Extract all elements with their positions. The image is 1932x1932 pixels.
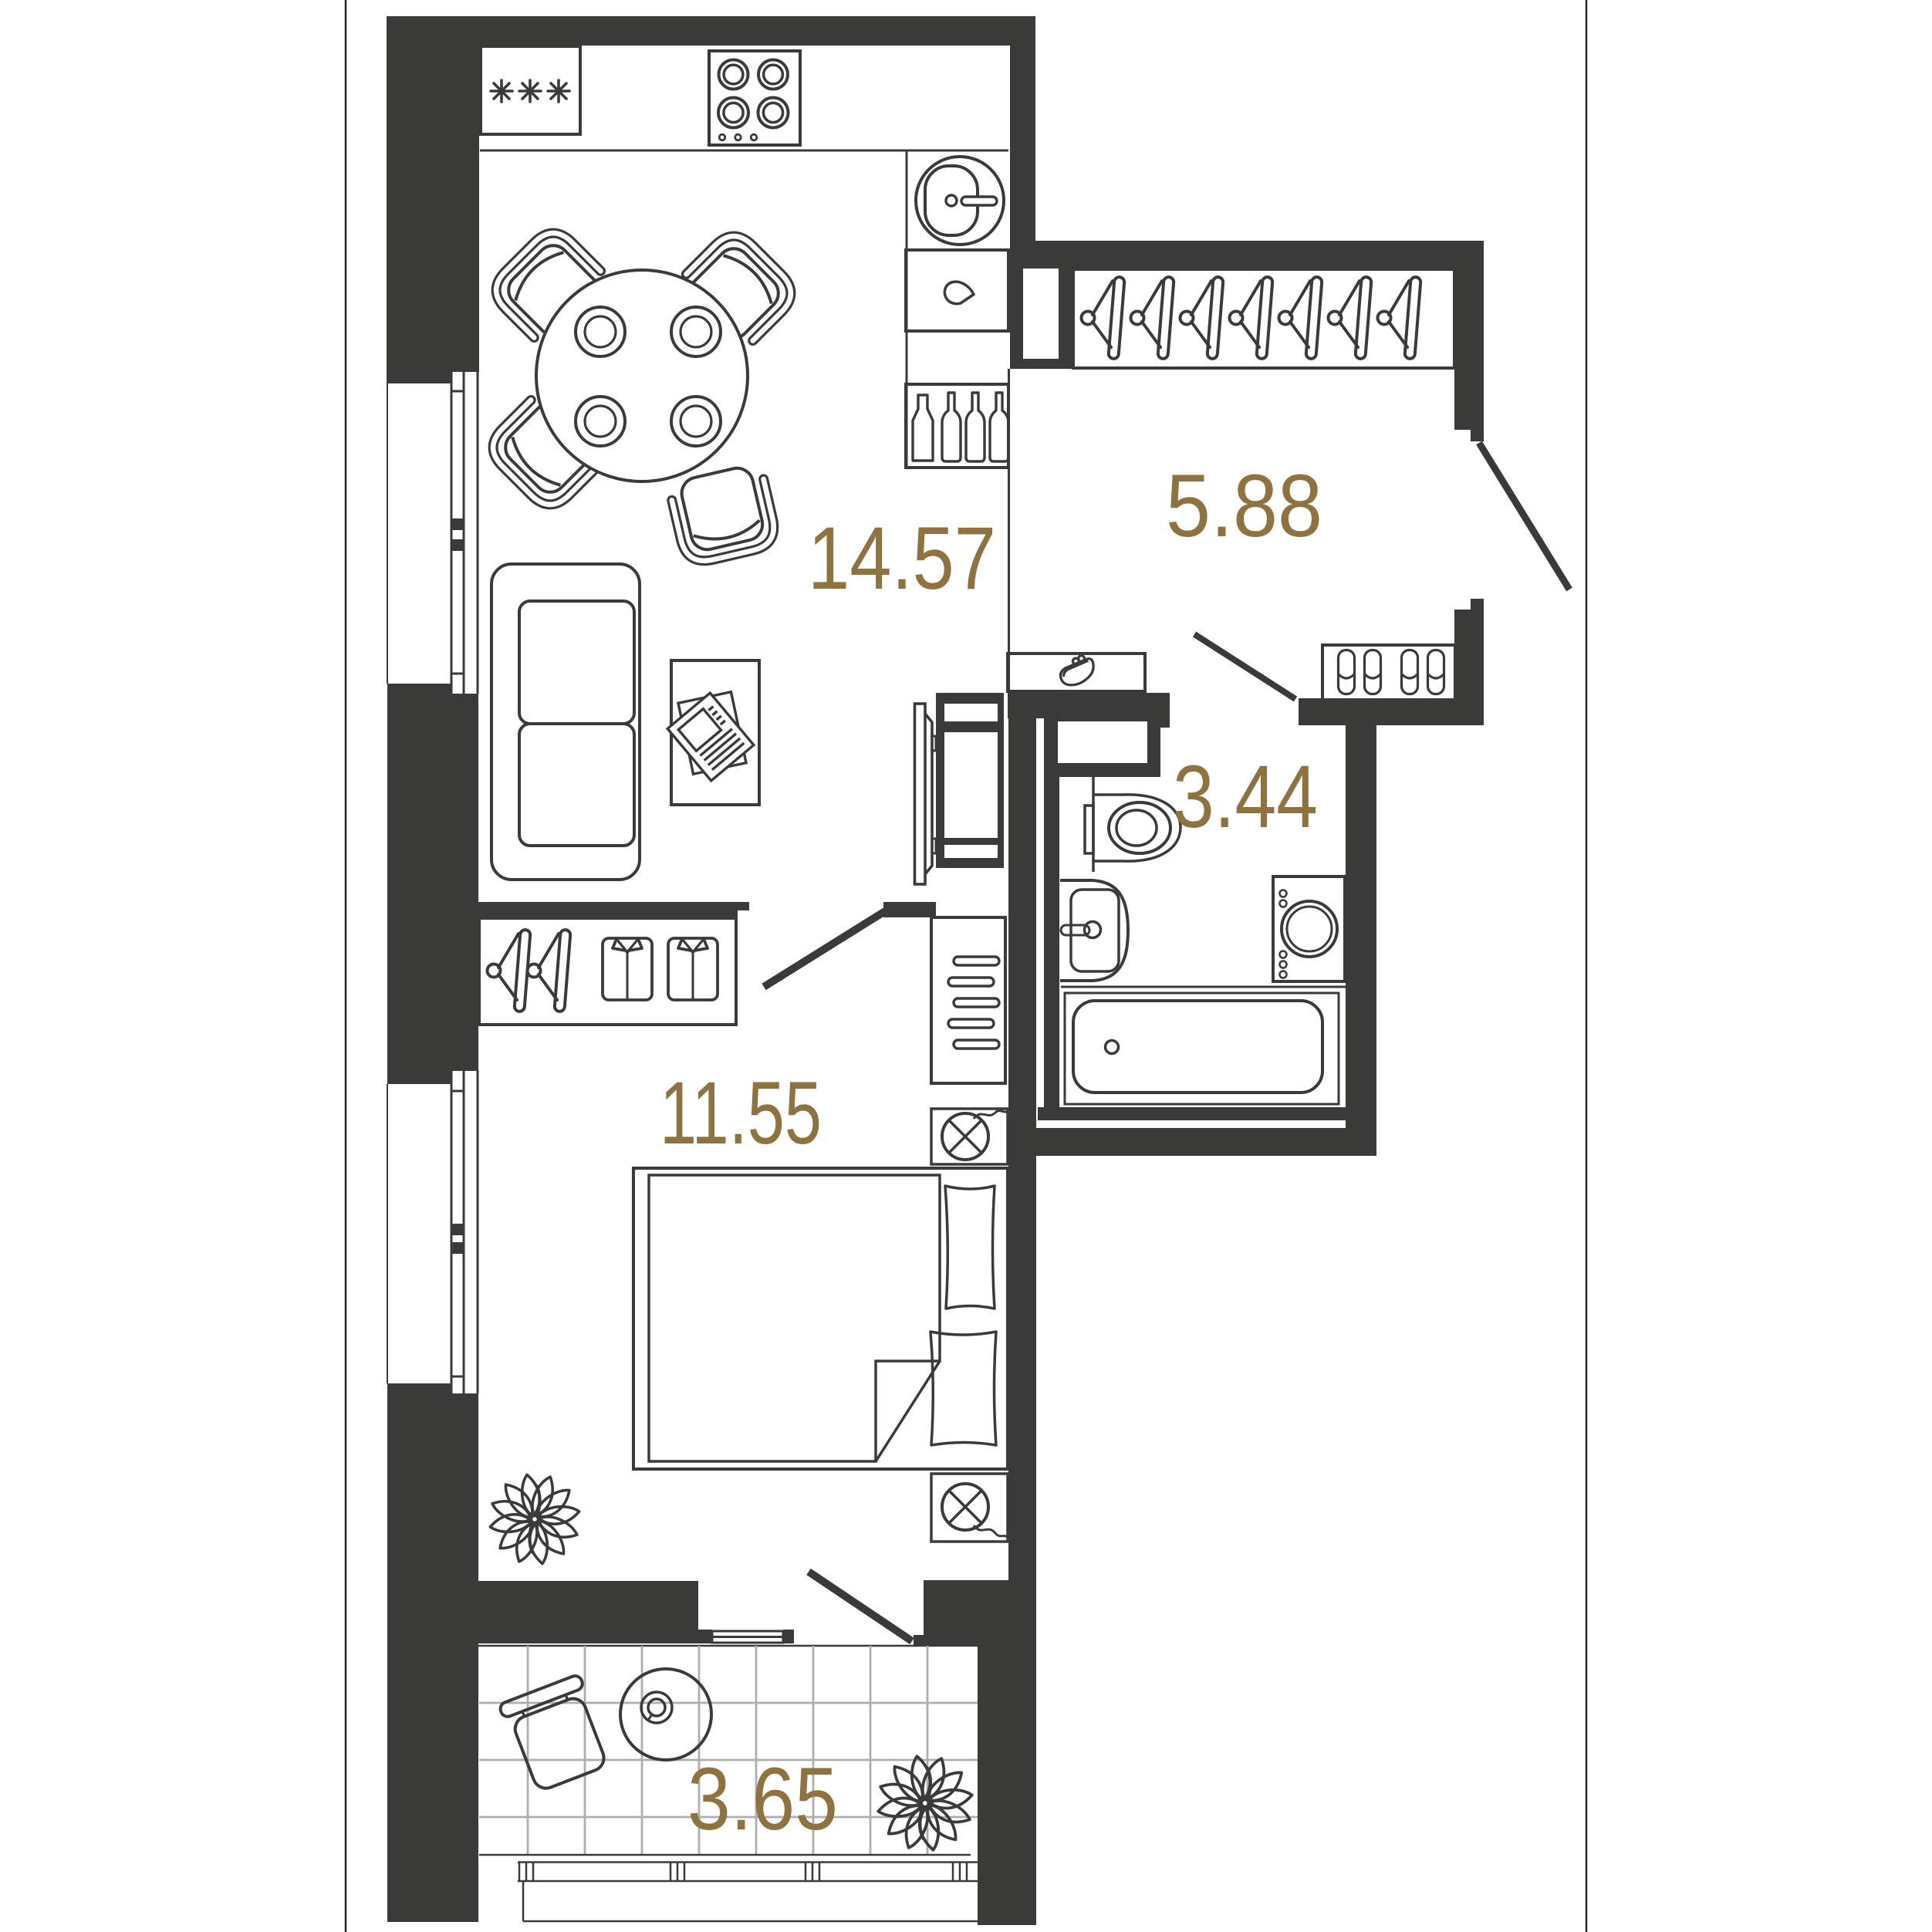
svg-text:5.88: 5.88 bbox=[1166, 457, 1322, 556]
svg-text:11.55: 11.55 bbox=[660, 1064, 822, 1163]
svg-text:3.65: 3.65 bbox=[687, 1750, 838, 1849]
svg-text:3.44: 3.44 bbox=[1173, 748, 1318, 846]
svg-text:14.57: 14.57 bbox=[808, 509, 996, 608]
